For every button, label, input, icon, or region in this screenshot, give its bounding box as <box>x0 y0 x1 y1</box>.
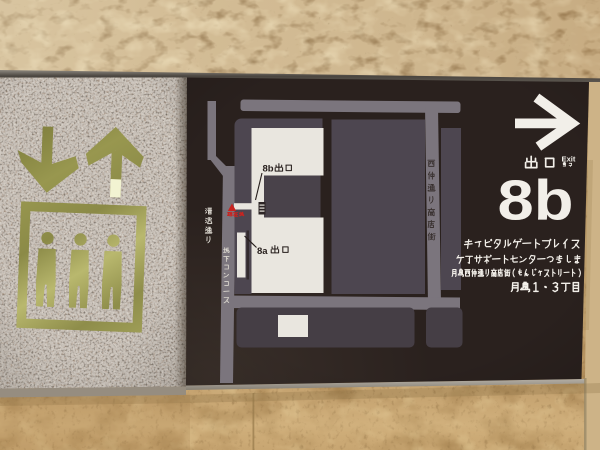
svg-text:8b: 8b <box>498 169 574 233</box>
svg-text:8b: 8b <box>263 164 274 175</box>
svg-text:Exit: Exit <box>562 155 576 164</box>
svg-text:8a: 8a <box>257 246 268 257</box>
